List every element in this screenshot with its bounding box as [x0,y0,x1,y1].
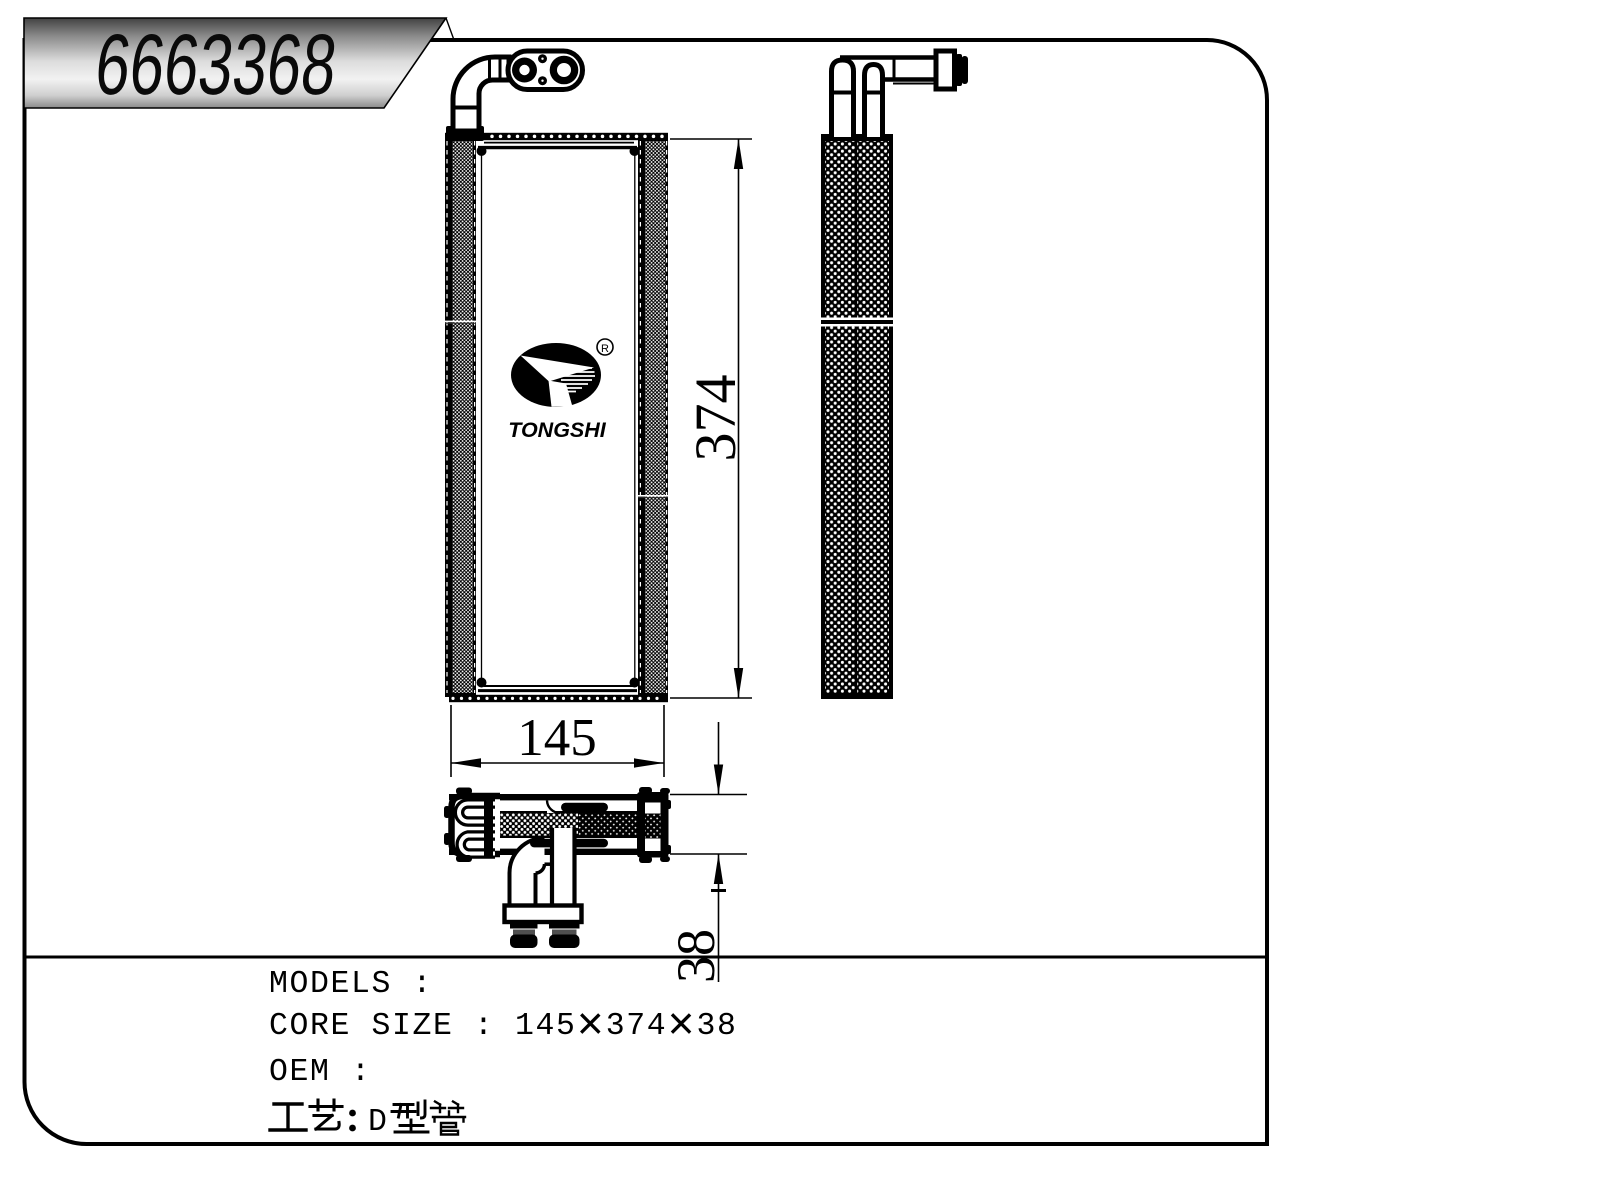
svg-text:MODELS :: MODELS : [269,967,433,1002]
svg-text:TONGSHI: TONGSHI [508,418,607,442]
svg-text:6663368: 6663368 [91,17,341,113]
svg-text:38: 38 [666,929,726,983]
svg-text:OEM :: OEM : [269,1055,372,1090]
svg-text:D: D [368,1105,389,1140]
svg-text:145: 145 [517,709,597,767]
svg-text:R: R [601,343,609,355]
svg-text:374: 374 [683,375,748,462]
